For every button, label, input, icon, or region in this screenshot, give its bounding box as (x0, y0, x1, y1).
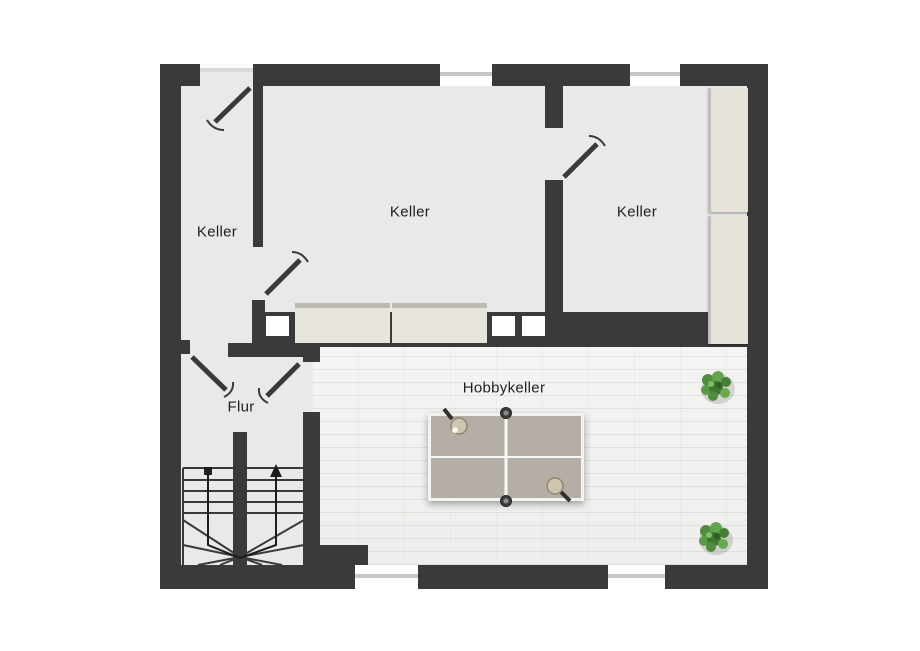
wall-flur-top-left (160, 340, 190, 354)
table-center-line (431, 456, 581, 458)
wall-flur-top-right (228, 343, 308, 357)
window-bottom-2 (608, 565, 665, 589)
window-bottom-1 (355, 565, 418, 589)
wall-stair-divider (233, 432, 247, 568)
window-glass (355, 574, 418, 578)
wall-keller-right-divider-top (545, 86, 563, 128)
room-label-flur: Flur (227, 399, 254, 416)
wall-bottom (160, 565, 768, 589)
wall-hatch-2 (492, 316, 515, 336)
opening-top-left-keller (200, 64, 253, 86)
room-label-keller-right: Keller (617, 204, 657, 221)
room-label-hobbykeller: Hobbykeller (463, 380, 546, 397)
room-label-keller-center: Keller (390, 204, 430, 221)
floorplan-canvas: Keller Keller Keller Flur Hobbykeller (0, 0, 920, 651)
table-tennis-table (428, 413, 584, 501)
window-top-2 (630, 64, 680, 86)
wall-hatch-1 (266, 316, 289, 336)
wall-left (160, 64, 181, 589)
window-glass (440, 72, 492, 76)
window-glass (630, 72, 680, 76)
sideboard-right (392, 303, 487, 343)
net-post-bottom (500, 495, 512, 507)
wall-pier-block (318, 545, 368, 567)
window-top-1 (440, 64, 492, 86)
cabinet-top (708, 88, 748, 212)
opening-threshold (200, 68, 253, 72)
net-post-top (500, 407, 512, 419)
wall-keller-right-divider (545, 180, 563, 347)
wall-hatch-3 (522, 316, 545, 336)
wall-keller-left-divider (253, 86, 263, 247)
sideboard-left (295, 303, 390, 343)
cabinet-bottom (708, 216, 748, 344)
wall-hobby-divider-stub (303, 342, 320, 362)
room-label-keller-left: Keller (197, 224, 237, 241)
window-glass (608, 574, 665, 578)
wall-right (747, 64, 768, 589)
wall-hobby-divider (303, 412, 320, 567)
